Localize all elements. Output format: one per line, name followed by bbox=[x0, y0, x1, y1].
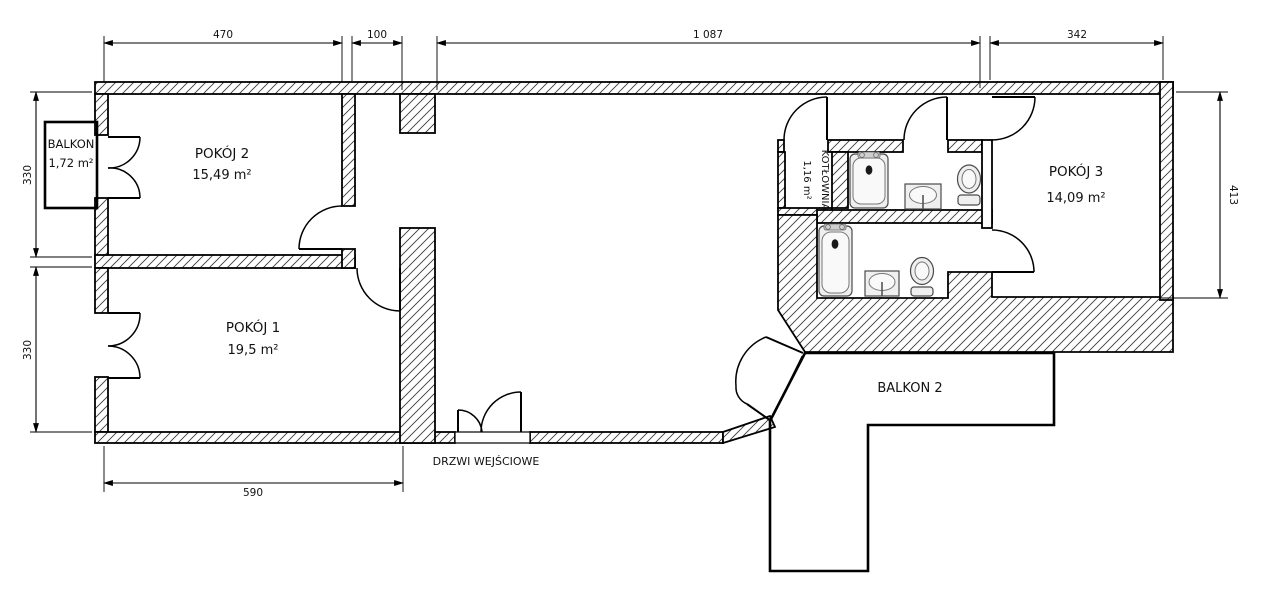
dim-330-lower: 330 bbox=[22, 340, 34, 360]
door-pokoj3-bottom bbox=[992, 230, 1034, 272]
floor-plan-page: 470 100 1 087 342 330 330 413 590 POKÓJ … bbox=[0, 0, 1280, 606]
wall-kotlownia-bath1 bbox=[832, 152, 848, 208]
wall-bath1-bath2 bbox=[817, 210, 992, 223]
wall-bath-top-b bbox=[828, 140, 903, 152]
sink-icon bbox=[905, 184, 941, 209]
door-balkon1-french bbox=[108, 137, 140, 198]
wall-partition-pokoj3 bbox=[982, 140, 992, 228]
room-label-kotlownia: KOTŁOWNIA bbox=[819, 150, 830, 211]
dim-330-upper: 330 bbox=[22, 165, 34, 185]
room-area-pokoj3: 14,09 m² bbox=[1046, 191, 1105, 206]
door-entrance bbox=[458, 392, 521, 432]
sink-icon bbox=[865, 271, 899, 296]
toilet-icon bbox=[911, 258, 934, 297]
wall-pokoj2-right-stub bbox=[342, 249, 355, 268]
wall-kotlownia-left bbox=[778, 152, 785, 208]
wall-angled-stub bbox=[723, 416, 775, 443]
room-area-pokoj2: 15,49 m² bbox=[192, 168, 251, 183]
room-label-balkon1: BALKON bbox=[48, 137, 95, 151]
room-area-kotlownia: 1,16 m² bbox=[801, 160, 812, 199]
wall-left-d bbox=[95, 377, 108, 432]
floor-plan-drawing: 470 100 1 087 342 330 330 413 590 POKÓJ … bbox=[0, 0, 1280, 606]
room-label-pokoj3: POKÓJ 3 bbox=[1049, 162, 1103, 180]
room-area-pokoj1: 19,5 m² bbox=[228, 343, 279, 358]
door-pokoj3-top bbox=[992, 97, 1035, 140]
room-area-balkon1: 1,72 m² bbox=[48, 156, 93, 170]
entrance-opening bbox=[455, 432, 530, 443]
room-label-balkon2: BALKON 2 bbox=[877, 381, 942, 396]
wall-bath-top-a bbox=[778, 140, 784, 152]
wall-pokoj3-right bbox=[1160, 82, 1173, 300]
door-bathroom1 bbox=[904, 97, 947, 140]
entrance-door-label: DRZWI WEJŚCIOWE bbox=[433, 455, 540, 468]
wall-left-c bbox=[95, 268, 108, 313]
door-kotlownia bbox=[784, 97, 827, 140]
wall-bottom-right bbox=[530, 432, 723, 443]
wall-top bbox=[95, 82, 1173, 94]
wall-bath-top-c bbox=[948, 140, 982, 152]
dim-1087: 1 087 bbox=[693, 29, 723, 41]
dim-470: 470 bbox=[213, 29, 233, 41]
wall-hall-right-thick bbox=[400, 228, 435, 443]
bathtub-icon bbox=[819, 224, 852, 296]
door-pokoj1-french bbox=[108, 313, 140, 378]
room-label-pokoj2: POKÓJ 2 bbox=[195, 144, 249, 162]
dim-100: 100 bbox=[367, 29, 387, 41]
door-pokoj1 bbox=[357, 268, 400, 311]
wall-pillar bbox=[400, 94, 435, 133]
dim-413: 413 bbox=[1227, 185, 1239, 205]
dim-342: 342 bbox=[1067, 29, 1087, 41]
wall-pokoj2-right-top bbox=[342, 94, 355, 206]
door-pokoj2 bbox=[299, 206, 342, 249]
toilet-icon bbox=[958, 165, 981, 205]
wall-mid-horizontal bbox=[95, 255, 355, 268]
bathtub-icon bbox=[850, 152, 888, 208]
room-label-pokoj1: POKÓJ 1 bbox=[226, 318, 280, 336]
dim-590: 590 bbox=[243, 487, 263, 499]
